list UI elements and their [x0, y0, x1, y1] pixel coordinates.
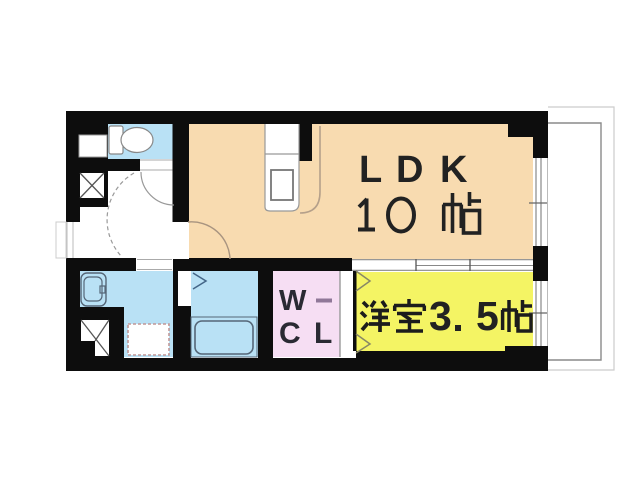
- svg-text:5: 5: [476, 293, 499, 339]
- svg-text:3: 3: [429, 293, 452, 339]
- svg-text:C: C: [279, 317, 301, 350]
- svg-text:K: K: [440, 149, 468, 191]
- svg-text:L: L: [314, 317, 332, 350]
- svg-text:L: L: [359, 149, 382, 191]
- svg-text:W: W: [279, 285, 307, 317]
- svg-text:D: D: [396, 149, 423, 191]
